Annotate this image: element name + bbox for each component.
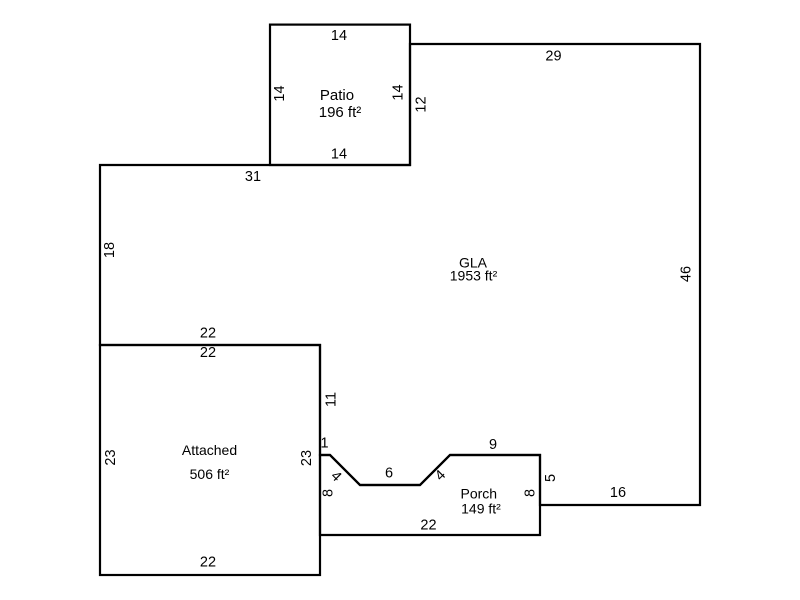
svg-text:14: 14 [391,84,407,100]
svg-text:8: 8 [523,489,539,497]
svg-text:23: 23 [299,450,315,466]
svg-text:18: 18 [102,242,118,258]
svg-text:31: 31 [245,169,261,185]
svg-text:46: 46 [679,266,695,282]
svg-text:14: 14 [272,85,288,101]
svg-text:1: 1 [320,436,328,452]
svg-text:1953 ft²: 1953 ft² [450,268,498,284]
svg-text:22: 22 [200,555,216,571]
svg-text:22: 22 [200,326,216,342]
svg-text:Patio: Patio [320,87,354,104]
svg-text:506 ft²: 506 ft² [190,466,230,482]
svg-text:149 ft²: 149 ft² [461,500,501,516]
svg-text:23: 23 [103,449,119,465]
svg-text:8: 8 [321,489,337,497]
svg-text:9: 9 [489,437,497,453]
svg-text:12: 12 [414,96,430,112]
svg-text:22: 22 [420,518,436,534]
svg-text:22: 22 [200,345,216,361]
svg-text:6: 6 [385,466,393,482]
svg-text:5: 5 [543,474,559,482]
svg-text:14: 14 [331,28,347,44]
svg-text:29: 29 [545,49,561,65]
svg-text:Attached: Attached [182,442,237,458]
svg-text:Porch: Porch [461,485,498,501]
svg-text:196 ft²: 196 ft² [319,104,362,121]
svg-text:14: 14 [331,147,347,163]
svg-text:11: 11 [323,392,339,407]
svg-text:16: 16 [610,485,626,501]
